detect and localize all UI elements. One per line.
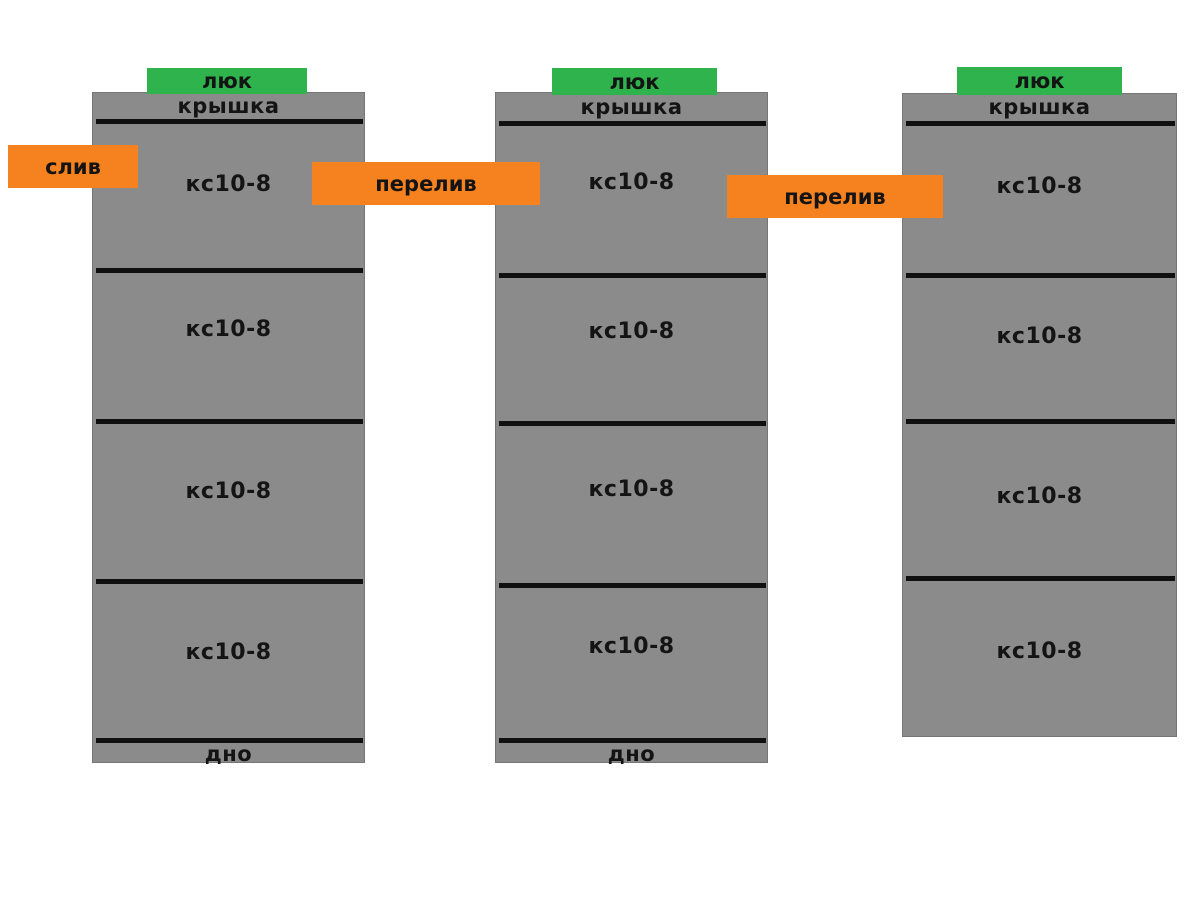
overflow-pipe-label-left: перелив [312,162,540,205]
divider-line [499,738,766,743]
divider-line [906,121,1175,126]
manhole-hatch-label-1: люк [147,68,307,94]
bottom-label: дно [93,742,364,766]
divider-line [96,268,363,273]
ring-label: кс10-8 [93,641,364,665]
ring-label: кс10-8 [903,325,1176,349]
cover-label: крышка [93,94,364,118]
divider-line [499,583,766,588]
overflow-pipe-label-right: перелив [727,175,943,218]
ring-label: кс10-8 [903,485,1176,509]
ring-label: кс10-8 [903,175,1176,199]
divider-line [499,121,766,126]
bottom-label: дно [496,742,767,766]
divider-line [499,273,766,278]
cover-label: крышка [496,95,767,119]
ring-label: кс10-8 [496,320,767,344]
divider-line [96,119,363,124]
divider-line [906,419,1175,424]
manhole-hatch-label-3: люк [957,67,1122,95]
cover-label: крышка [903,95,1176,119]
ring-label: кс10-8 [496,635,767,659]
ring-label: кс10-8 [93,318,364,342]
septic-tank-diagram: крышка кс10-8 кс10-8 кс10-8 кс10-8 дно к… [0,0,1200,900]
divider-line [906,273,1175,278]
ring-label: кс10-8 [93,480,364,504]
divider-line [96,738,363,743]
tank-column-3: крышка кс10-8 кс10-8 кс10-8 кс10-8 [902,93,1177,737]
ring-label: кс10-8 [903,640,1176,664]
divider-line [96,419,363,424]
divider-line [906,576,1175,581]
ring-label: кс10-8 [496,478,767,502]
divider-line [96,579,363,584]
divider-line [499,421,766,426]
drain-pipe-label: слив [8,145,138,188]
manhole-hatch-label-2: люк [552,68,717,95]
